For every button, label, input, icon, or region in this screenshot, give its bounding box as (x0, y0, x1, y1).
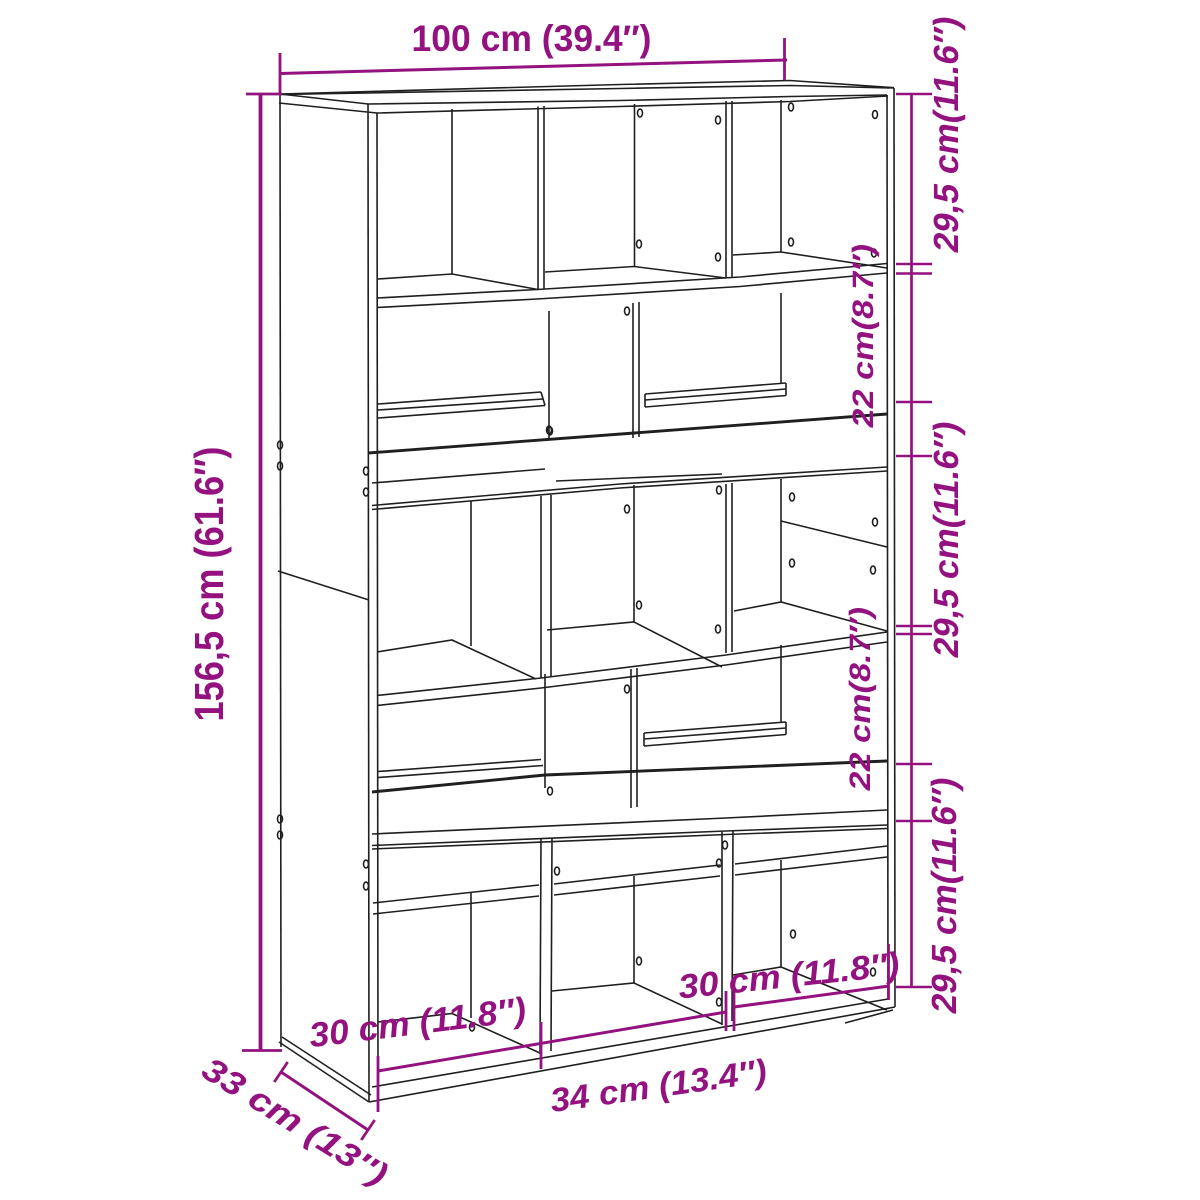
svg-text:29,5 cm(11.6″): 29,5 cm(11.6″) (927, 418, 966, 661)
svg-text:29,5 cm(11.6″): 29,5 cm(11.6″) (927, 13, 966, 256)
svg-text:29,5 cm(11.6″): 29,5 cm(11.6″) (925, 774, 964, 1017)
svg-text:156,5 cm (61.6″): 156,5 cm (61.6″) (186, 447, 232, 722)
svg-text:22 cm(8.7″): 22 cm(8.7″) (847, 240, 880, 430)
svg-text:22 cm(8.7″): 22 cm(8.7″) (844, 603, 877, 793)
svg-text:100 cm (39.4″): 100 cm (39.4″) (412, 17, 652, 59)
